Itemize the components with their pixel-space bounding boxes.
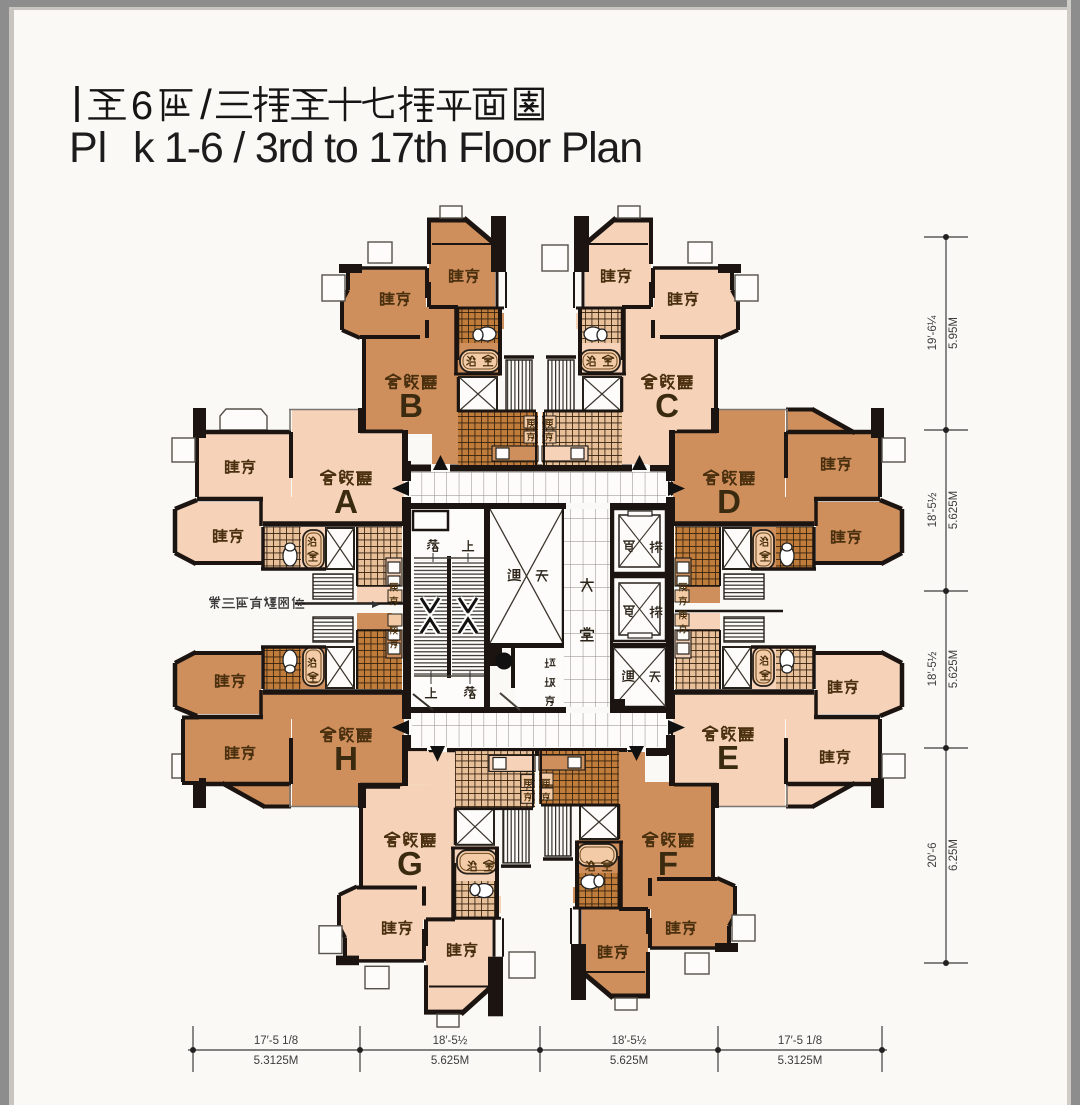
svg-text:E: E (717, 739, 739, 776)
svg-text:5.3125M: 5.3125M (254, 1055, 299, 1067)
svg-text:Pl: Pl (69, 124, 107, 172)
svg-text:5.95M: 5.95M (948, 317, 960, 349)
svg-text:5.625M: 5.625M (948, 650, 960, 688)
svg-text:18′-5½: 18′-5½ (433, 1035, 468, 1047)
svg-text:18′-5½: 18′-5½ (927, 492, 939, 527)
svg-text:D: D (717, 483, 741, 520)
svg-text:5.625M: 5.625M (610, 1055, 648, 1067)
svg-text:A: A (334, 483, 358, 520)
svg-text:6: 6 (131, 84, 153, 128)
svg-text:20′-6: 20′-6 (927, 842, 939, 867)
svg-text:5.625M: 5.625M (948, 491, 960, 529)
svg-text:F: F (658, 845, 678, 882)
svg-text:17′-5 1/8: 17′-5 1/8 (254, 1035, 298, 1047)
svg-text:/: / (200, 81, 212, 128)
svg-text:H: H (334, 740, 358, 777)
svg-text:18′-5½: 18′-5½ (612, 1035, 647, 1047)
svg-text:B: B (399, 387, 423, 424)
svg-text:C: C (655, 387, 679, 424)
svg-text:19′-6¼: 19′-6¼ (927, 315, 939, 350)
svg-text:18′-5½: 18′-5½ (927, 651, 939, 686)
svg-text:G: G (397, 845, 423, 882)
svg-text:17′-5 1/8: 17′-5 1/8 (778, 1035, 822, 1047)
svg-text:k 1-6 / 3rd to 17th Floor Plan: k 1-6 / 3rd to 17th Floor Plan (133, 124, 642, 172)
svg-text:5.3125M: 5.3125M (778, 1055, 823, 1067)
svg-text:5.625M: 5.625M (431, 1055, 469, 1067)
svg-text:6.25M: 6.25M (948, 839, 960, 871)
